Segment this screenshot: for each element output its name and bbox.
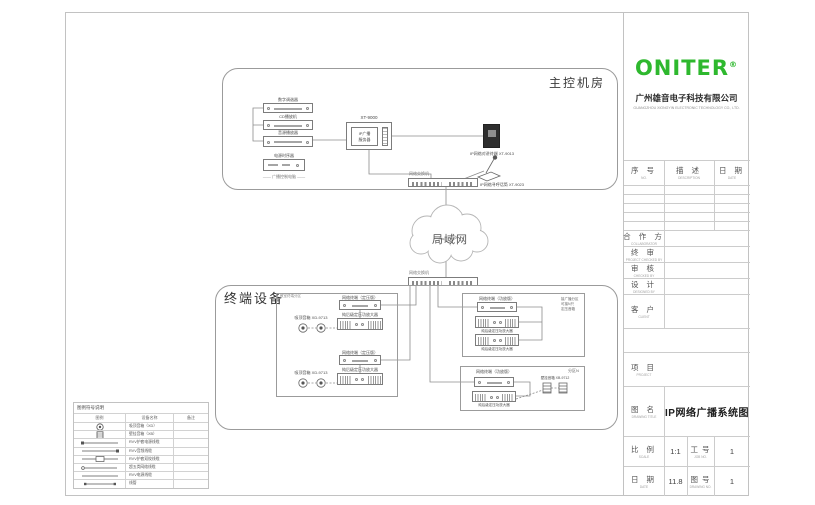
signoff-cn: 终 审 (631, 247, 657, 258)
switch2-label: 网络交换机 (409, 270, 429, 276)
drawing-no-value-cell: 1 (714, 466, 750, 496)
signoff-client: 客 户 CLIENT (624, 294, 664, 328)
box2-terminal-label: 网络终端（功放版） (479, 296, 515, 302)
brand-logo: ONITER® (635, 56, 738, 80)
signoff-en: DESIGNED BY (633, 290, 655, 294)
legend-header-remark: 备注 (174, 413, 208, 422)
control-room-label: 主控机房 (549, 74, 605, 91)
scale-en: SCALE (639, 455, 649, 459)
legend-row-name: RVV护套电源线缆 (126, 438, 174, 446)
switch1-ports (412, 182, 442, 186)
box3-amp-device (472, 391, 516, 402)
scale-value-cell: 1:1 (664, 436, 687, 466)
legend-row-remark (174, 438, 208, 446)
legend-line-twisted-icon (74, 455, 126, 463)
g2-amp-device (337, 373, 383, 385)
company-name-en: GUANGZHOU XIONGYIN ELECTRONIC TECHNOLOGY… (633, 106, 739, 110)
legend-row-name: RVV护套双绞线缆 (126, 455, 174, 463)
box3-terminal-device (474, 377, 514, 387)
legend-row-remark (174, 471, 208, 479)
g1-terminal-device (339, 300, 381, 310)
no-cn: 图 号 (690, 474, 710, 485)
switch1-device (408, 178, 478, 187)
scale-cell: 比 例 SCALE (624, 436, 664, 466)
legend-row-name: RVV音频线缆 (126, 447, 174, 455)
drawing-name-cell: 图 名 DRAWING TITLE (624, 386, 664, 436)
project-en: PROJECT (637, 373, 652, 377)
legend-header-name: 设备名称 (126, 413, 174, 422)
signoff-checked: 审 核 CHECKED BY (624, 262, 664, 278)
legend-wall-speaker-icon (74, 430, 126, 438)
source3-device (263, 136, 313, 147)
drawing-no-cell: 图 号 DRAWING NO. (687, 466, 714, 496)
signoff-cn: 合 作 方 (623, 231, 665, 242)
sequencer-note: —— 广播控制电脑 —— (263, 174, 305, 180)
legend-line-tube-icon (74, 479, 126, 487)
legend-line-utp-icon (74, 463, 126, 471)
job-value-cell: 1 (714, 436, 750, 466)
rev-col-no: 序 号 NO. (624, 160, 664, 185)
legend-row-remark (174, 430, 208, 438)
legend-row-remark (174, 422, 208, 430)
legend-row-remark (174, 479, 208, 487)
scale-value: 1:1 (670, 447, 680, 456)
drawing-title: IP网络广播系统图 (665, 404, 749, 419)
legend-ceiling-speaker-icon (74, 422, 126, 430)
dwg-en: DRAWING TITLE (632, 415, 657, 419)
company-name-cn: 广州雄音电子科技有限公司 (635, 92, 737, 104)
drawing-canvas: 主控机房 数字调谐器 CD播放机 音源播放器 电源时序器 —— 广播控制电脑 —… (0, 0, 815, 505)
date-value: 11.8 (668, 477, 682, 486)
sequencer-device (263, 159, 305, 171)
signoff-en: CLIENT (638, 315, 649, 319)
date-en: DATE (640, 485, 648, 489)
signoff-final-check: 终 审 PROJECT CHECKED BY (624, 246, 664, 262)
brand-text: ONITER (635, 56, 729, 80)
legend-title: 图例符号说明 (74, 403, 208, 413)
switch2-ports2 (449, 281, 473, 285)
signoff-cn: 客 户 (631, 304, 657, 315)
legend-header-icon: 图例 (74, 413, 126, 422)
box3-speaker-label: 壁挂音箱 XB-9712 (541, 376, 570, 381)
signoff-en: CHECKED BY (634, 274, 655, 278)
legend-row-name: 壁挂音箱（XB） (126, 430, 174, 438)
box3-terminal-label: 网络终端（功放版） (476, 369, 512, 375)
g1-speaker-label: 吸顶音箱 XD-9713 (295, 315, 328, 321)
legend-row-remark (174, 447, 208, 455)
registered-mark: ® (729, 60, 738, 69)
box2-amp2-device (475, 334, 519, 346)
dwg-cn: 图 名 (631, 404, 657, 415)
legend-line-power-icon (74, 471, 126, 479)
paging-mic-label: IP网络寻呼话筒 XT-9023 (480, 182, 524, 188)
drawing-no-value: 1 (730, 477, 734, 486)
box2-terminal-device (477, 302, 517, 312)
switch2-ports (412, 281, 442, 285)
title-block: ONITER® 广州雄音电子科技有限公司 GUANGZHOU XIONGYIN … (623, 12, 749, 496)
rev-desc-cn: 描 述 (676, 165, 702, 176)
rev-col-desc: 描 述 DESCRIPTION (664, 160, 714, 185)
legend-row-name: 吸顶音箱（XD） (126, 422, 174, 430)
box3-amp-label: 纯后级定压功放大器 (478, 403, 510, 408)
box2-amp2-label: 纯后级定压功放大器 (481, 347, 513, 352)
job-value: 1 (730, 447, 734, 456)
box1-label: 教室终端分区 (280, 294, 301, 299)
job-cell: 工 号 JOB NO. (687, 436, 714, 466)
date-cn: 日 期 (631, 474, 657, 485)
g2-speaker-label: 吸顶音箱 XD-9713 (295, 370, 328, 376)
legend-line-audio-icon (74, 447, 126, 455)
switch1-ports2 (449, 182, 473, 186)
source2-device (263, 120, 313, 130)
rev-date-en: DATE (728, 176, 736, 180)
project-cn: 项 目 (631, 362, 657, 373)
rev-no-cn: 序 号 (631, 165, 657, 176)
lan-label: 局域网 (432, 231, 468, 247)
signoff-en: PROJECT CHECKED BY (626, 258, 662, 262)
job-en: JOB NO. (694, 455, 707, 459)
date-value-cell: 11.8 (664, 466, 687, 496)
legend-row-name: RVV电源线缆 (126, 471, 174, 479)
terminal-area-label: 终端设备 (224, 288, 284, 307)
legend-row-name: 超五类网络线缆 (126, 463, 174, 471)
legend-line-rvv-power-icon (74, 438, 126, 446)
intercom-terminal-device (483, 124, 500, 148)
switch1-label: 网络交换机 (409, 171, 429, 177)
g1-amp-device (337, 318, 383, 330)
rev-desc-en: DESCRIPTION (678, 176, 700, 180)
legend-table: 图例符号说明 图例 设备名称 备注 吸顶音箱（XD） 壁挂音箱（XB） RVV护… (73, 402, 209, 489)
server-device: IP广播 服务器 (346, 122, 392, 150)
box3-note: 分区N (568, 368, 579, 374)
box2-amp1-device (475, 316, 519, 328)
signoff-collaborator: 合 作 方 COLLABORATOR (624, 230, 664, 246)
no-en: DRAWING NO. (690, 485, 712, 489)
server-screen: IP广播 服务器 (351, 127, 378, 146)
drawing-title-value-cell: IP网络广播系统图 (664, 386, 750, 436)
date-cell: 日 期 DATE (624, 466, 664, 496)
signoff-cn: 审 核 (631, 263, 657, 274)
intercom-label: IP网络对讲终端 XT-9013 (470, 151, 514, 157)
signoff-en: COLLABORATOR (631, 242, 657, 246)
signoff-cn: 设 计 (631, 279, 657, 290)
legend-row-remark (174, 455, 208, 463)
rev-col-date: 日 期 DATE (714, 160, 750, 185)
box2-amp1-label: 纯后级定压功放大器 (481, 329, 513, 334)
legend-row-name: 线管 (126, 479, 174, 487)
intercom-screen (488, 130, 496, 137)
signoff-designed: 设 计 DESIGNED BY (624, 278, 664, 294)
box2-note: 接广播分区 可接N只 定压音箱 (561, 297, 583, 312)
project-cell: 项 目 PROJECT (624, 352, 664, 386)
job-cn: 工 号 (690, 444, 710, 455)
scale-cn: 比 例 (631, 444, 657, 455)
server-model-label: XT-9000 (360, 115, 377, 120)
rev-no-en: NO. (641, 176, 647, 180)
rev-date-cn: 日 期 (719, 165, 745, 176)
source1-device (263, 103, 313, 113)
legend-row-remark (174, 463, 208, 471)
server-vent (382, 127, 388, 146)
g2-terminal-device (339, 355, 381, 365)
